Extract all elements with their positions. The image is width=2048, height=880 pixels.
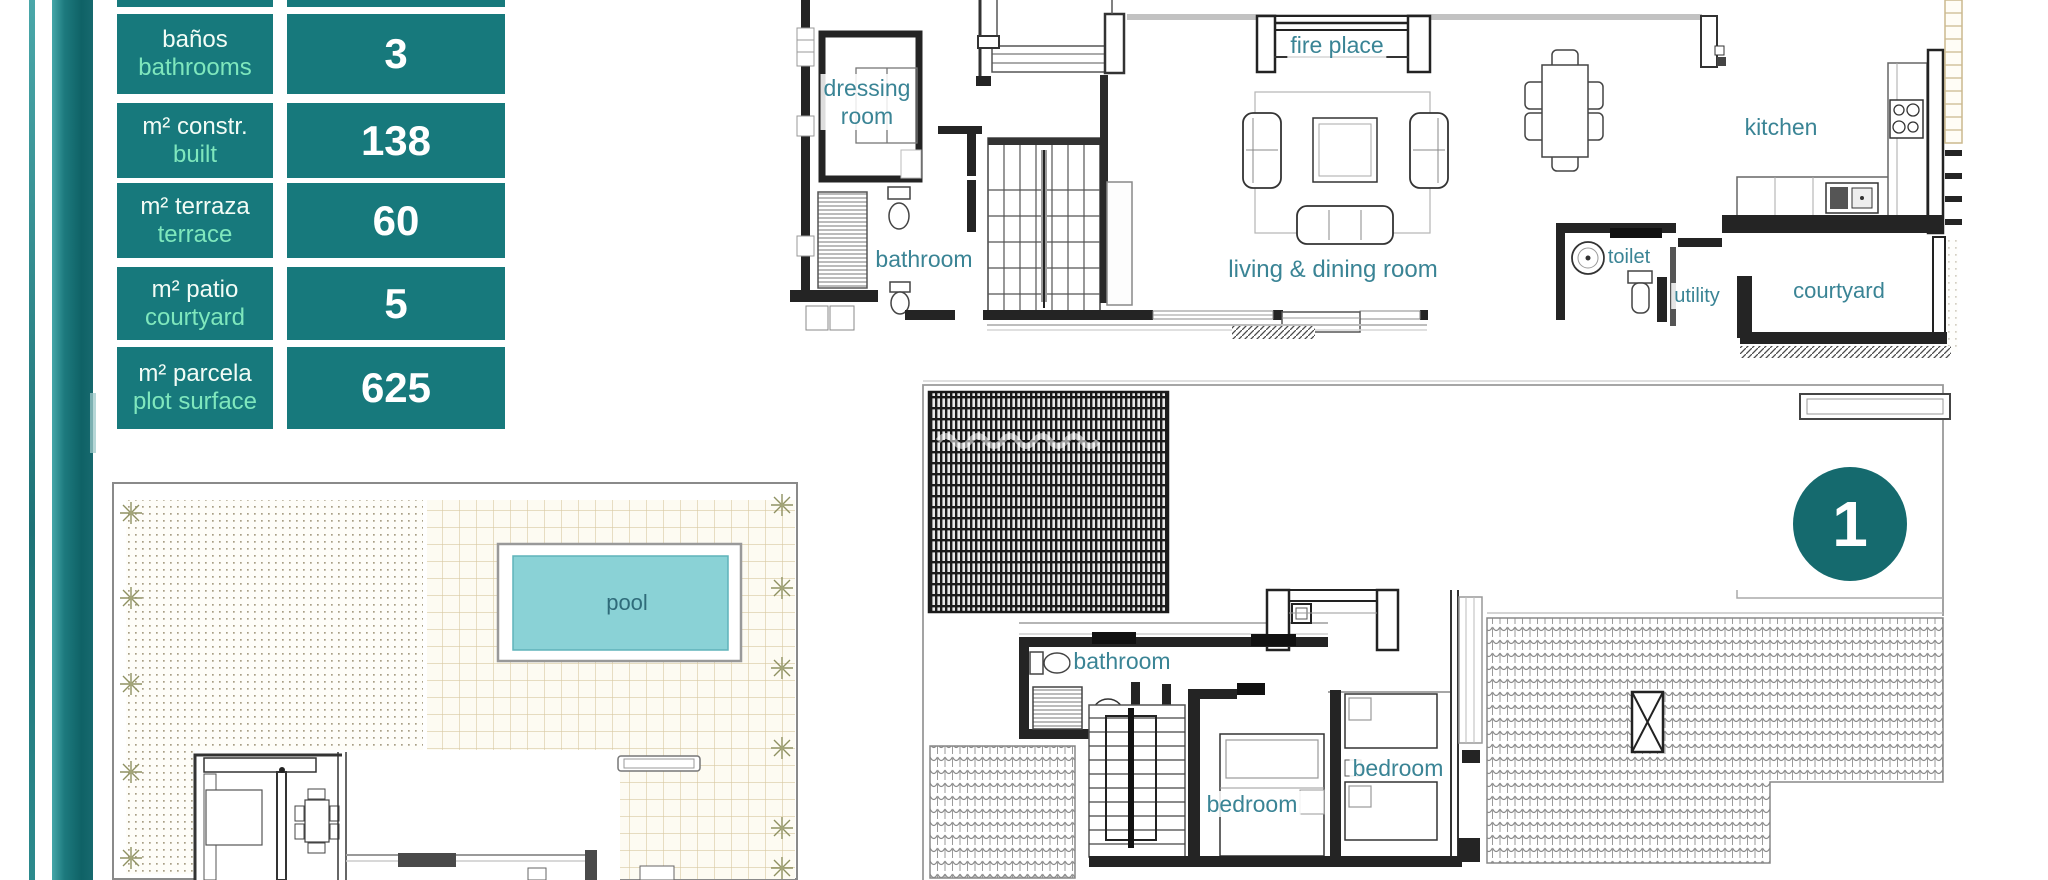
floor-number: 1 <box>1832 487 1868 561</box>
bed-single <box>1345 782 1437 840</box>
entry-hall <box>976 0 1124 86</box>
room-label-living-dining: living & dining room <box>1225 257 1440 283</box>
room-label-kitchen: kitchen <box>1742 114 1821 140</box>
louvre-window <box>818 192 867 288</box>
roof-section <box>929 392 1168 612</box>
staircase <box>988 138 1100 316</box>
column <box>1107 182 1132 305</box>
sofa-set <box>1243 92 1448 244</box>
site-plan <box>113 483 797 880</box>
toilet-icon <box>890 282 910 314</box>
roof-tiles-left <box>930 746 1075 878</box>
room-label-courtyard: courtyard <box>1790 278 1888 304</box>
floor-number-badge: 1 <box>1793 467 1907 581</box>
dining-set <box>1525 50 1603 171</box>
room-label-bathroom-ground: bathroom <box>872 246 975 272</box>
room-label-pool: pool <box>603 590 651 616</box>
room-label-toilet: toilet <box>1605 244 1653 270</box>
room-label-fireplace: fire place <box>1287 32 1386 58</box>
chimney-x-box <box>1632 692 1663 752</box>
shower <box>1033 687 1082 729</box>
right-edge-details <box>1945 0 1962 352</box>
room-label-dressing: dressing room <box>821 74 914 130</box>
bench <box>618 756 700 771</box>
kitchen-units <box>1701 16 1943 233</box>
room-label-bedroom-right: bedroom <box>1350 755 1447 781</box>
bed-single <box>1345 694 1437 748</box>
room-label-bedroom-left: bedroom <box>1204 791 1301 817</box>
room-label-bathroom-first: bathroom <box>1070 648 1173 674</box>
first-floor-plan <box>923 381 1950 880</box>
skylight <box>1800 394 1950 419</box>
roof-tiles-right <box>1487 618 1943 863</box>
toilet-icon <box>888 187 910 229</box>
south-wall <box>905 310 1428 339</box>
east-wall <box>1451 590 1482 866</box>
toilet-room <box>1556 223 1676 322</box>
staircase-upper <box>1089 705 1185 857</box>
floorplan-page: baños bathrooms 3 m² constr. built 138 m… <box>0 0 2048 880</box>
room-label-utility: utility <box>1671 283 1723 309</box>
